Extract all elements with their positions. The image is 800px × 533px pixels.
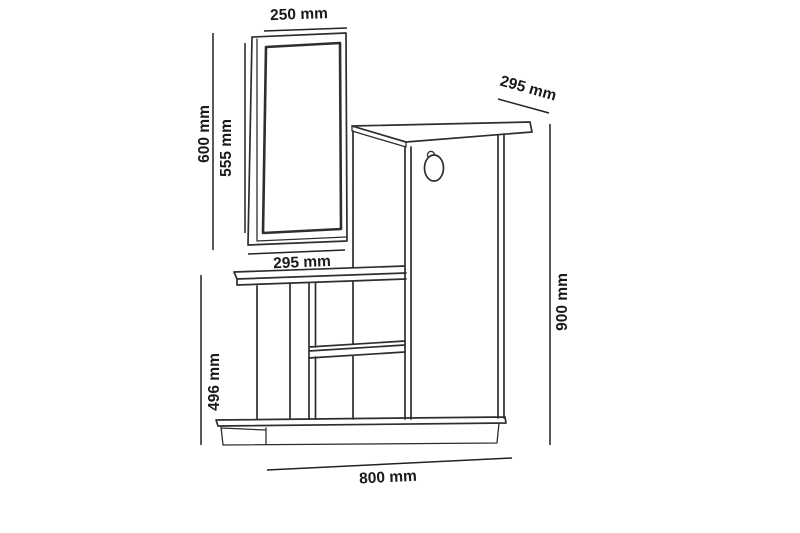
- dimension-label: 295 mm: [273, 253, 331, 272]
- support-panel: [257, 284, 290, 419]
- hook-body: [425, 155, 444, 181]
- dimension-label: 250 mm: [270, 5, 328, 24]
- cabinet-front-left-edge: [405, 147, 411, 419]
- diagram-page: 250 mm 600 mm 555 mm 295 mm 295 mm 900 m: [0, 0, 800, 533]
- dimension-label: 555 mm: [218, 119, 235, 177]
- dimension-label: 600 mm: [196, 105, 213, 163]
- base-platform: [216, 417, 506, 426]
- hallway-unit-dimension-diagram: 250 mm 600 mm 555 mm 295 mm 295 mm 900 m: [0, 0, 800, 533]
- dimension-label: 800 mm: [359, 468, 417, 488]
- dimension-cabinet-depth: 295 mm: [498, 73, 558, 113]
- mirror: [248, 33, 347, 245]
- dimension-line: [264, 28, 347, 31]
- dimension-mirror-height-outer: 600 mm: [196, 33, 213, 250]
- dimension-cabinet-height: 900 mm: [550, 124, 571, 445]
- dimension-label: 900 mm: [554, 273, 571, 331]
- dimension-overall-width: 800 mm: [267, 458, 512, 487]
- cabinet-front-right-edge: [498, 134, 504, 418]
- hanger-hook: [425, 151, 444, 181]
- dimension-mirror-height-inner: 555 mm: [218, 43, 245, 233]
- middle-shelf: [309, 341, 405, 358]
- dimension-label: 295 mm: [498, 73, 558, 105]
- dimension-mirror-width: 250 mm: [264, 5, 347, 31]
- base: [216, 417, 506, 445]
- shelf-unit: [234, 266, 406, 419]
- tall-cabinet: [352, 122, 532, 419]
- dimension-label: 496 mm: [206, 353, 223, 411]
- dimension-mirror-bottom-width: 295 mm: [248, 250, 345, 272]
